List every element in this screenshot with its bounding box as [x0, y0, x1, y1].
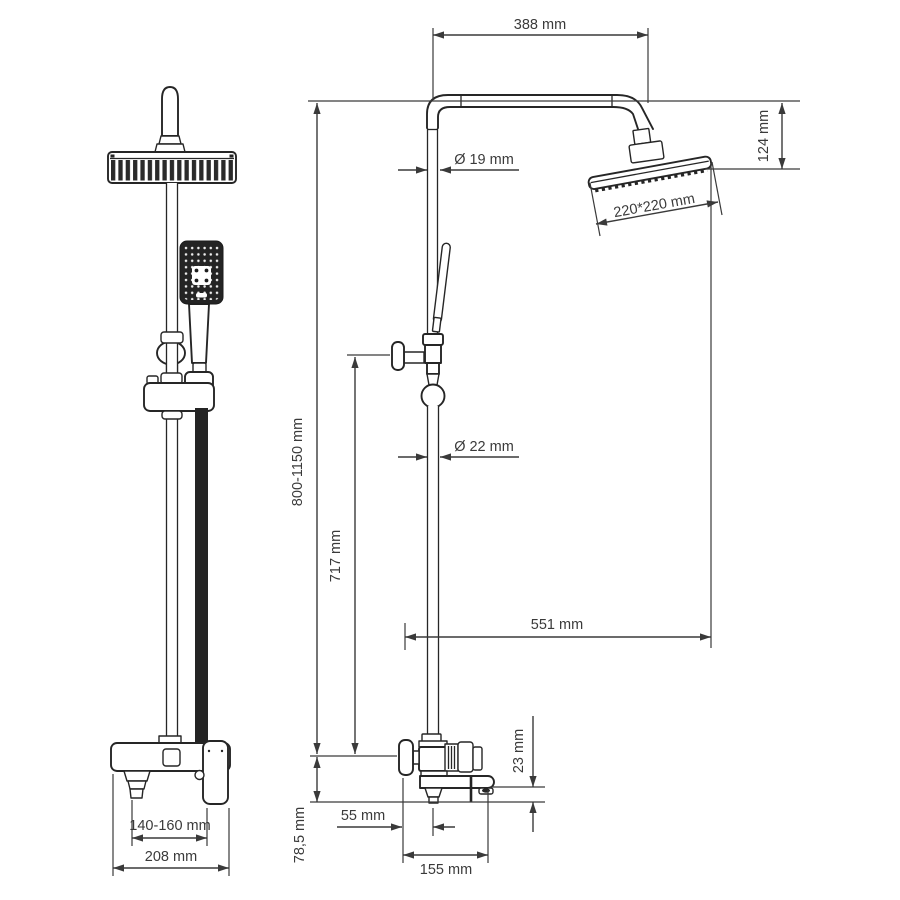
- cartridge-blocks: [445, 742, 482, 772]
- dim-head-drop: 124 mm: [756, 110, 772, 162]
- ball-joint: [422, 385, 445, 408]
- dim-bar-height: 717 mm: [328, 530, 344, 582]
- hand-shower-handle: [189, 304, 209, 363]
- head-collar-lower: [155, 144, 185, 152]
- dim-wall-to-head: 551 mm: [531, 617, 583, 633]
- shower-hose: [195, 408, 208, 743]
- spout-aerator-front: [124, 771, 150, 781]
- dim-arm-reach: 388 mm: [514, 17, 566, 33]
- dim-head-size: 220*220 mm: [612, 191, 696, 221]
- shower-system-drawing: 388 mm 124 mm Ø 19 mm 220*220 mm 800-115…: [0, 0, 900, 900]
- mixer-front: [111, 736, 230, 804]
- front-view: [108, 87, 236, 804]
- column-top-cap: [162, 87, 178, 136]
- column-pipe-front: [166, 183, 178, 737]
- dim-spout-drop: 23 mm: [511, 729, 527, 773]
- head-connector: [627, 127, 664, 163]
- diverter-knob-stem: [404, 352, 424, 363]
- dim-wall-to-pipe-center: 55 mm: [341, 808, 385, 824]
- shower-arm: [427, 95, 653, 129]
- rain-head-front: [108, 152, 236, 183]
- rain-head-fins: [111, 160, 233, 181]
- dim-body-width: 208 mm: [145, 849, 197, 865]
- dim-spout-to-handle: 140-160 mm: [129, 818, 210, 834]
- diverter-button: [163, 749, 180, 766]
- mixer-handle-front: [203, 741, 228, 804]
- diverter-knob: [392, 342, 404, 370]
- bottom-outlet: [425, 788, 442, 797]
- dim-spout-reach: 155 mm: [420, 862, 472, 878]
- handle-pivot: [195, 771, 204, 780]
- hand-shower-front: [180, 241, 223, 375]
- diverter-assembly: [392, 334, 445, 408]
- head-collar-upper: [159, 136, 181, 144]
- mixer-body-side: [419, 747, 447, 771]
- dim-lower-pipe-diameter: Ø 22 mm: [454, 439, 514, 455]
- spout-side: [420, 776, 494, 788]
- column-pipe-side-lower: [427, 406, 439, 734]
- mixer-side: [399, 734, 494, 803]
- dim-upper-pipe-diameter: Ø 19 mm: [454, 152, 514, 168]
- temp-knob-side: [399, 740, 413, 775]
- technical-drawing-page: 388 mm 124 mm Ø 19 mm 220*220 mm 800-115…: [0, 0, 900, 900]
- dim-height-range: 800-1150 mm: [290, 418, 306, 506]
- dim-center-to-spout-bottom: 78,5 mm: [292, 807, 308, 863]
